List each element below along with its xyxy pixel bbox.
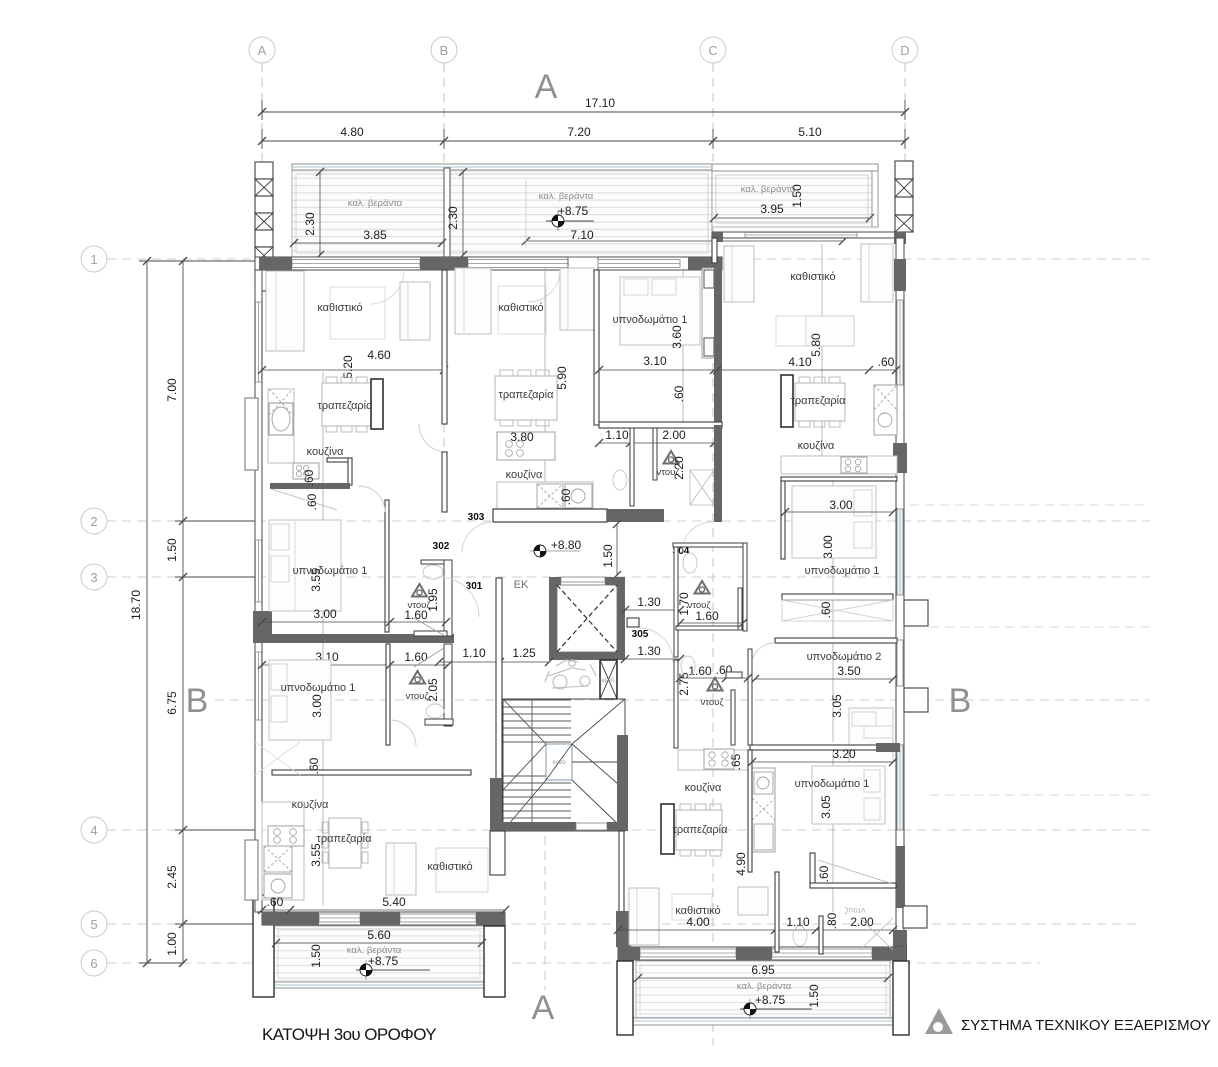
svg-text:5.20: 5.20 <box>341 355 355 379</box>
svg-text:2.20: 2.20 <box>672 456 686 480</box>
svg-text:ΣΥΣΤΗΜΑ ΤΕΧΝΙΚΟΥ ΕΞΑΕΡΙΣΜΟΥ: ΣΥΣΤΗΜΑ ΤΕΧΝΙΚΟΥ ΕΞΑΕΡΙΣΜΟΥ <box>961 1017 1211 1034</box>
svg-text:.60: .60 <box>267 895 284 909</box>
svg-text:EK: EK <box>514 579 529 591</box>
svg-text:2.05: 2.05 <box>426 678 440 702</box>
svg-text:καθιστικό: καθιστικό <box>427 861 472 873</box>
svg-text:1.50: 1.50 <box>601 544 615 568</box>
svg-text:κουζίνα: κουζίνα <box>506 469 543 481</box>
svg-text:2.45: 2.45 <box>165 865 179 889</box>
svg-text:B: B <box>440 43 449 58</box>
svg-text:5.10: 5.10 <box>798 125 822 139</box>
svg-text:7.20: 7.20 <box>567 125 591 139</box>
svg-text:5.60: 5.60 <box>367 928 391 942</box>
svg-text:1.50: 1.50 <box>165 538 179 562</box>
svg-text:4: 4 <box>90 823 97 838</box>
svg-text:6.75: 6.75 <box>165 691 179 715</box>
svg-text:3.55: 3.55 <box>309 568 323 592</box>
svg-text:1.60: 1.60 <box>688 664 712 678</box>
svg-text:B: B <box>949 682 972 720</box>
svg-text:υπνοδωμάτιο 1: υπνοδωμάτιο 1 <box>293 565 368 577</box>
svg-text:1.50: 1.50 <box>790 184 804 208</box>
svg-text:1.60: 1.60 <box>404 608 428 622</box>
svg-text:305: 305 <box>632 629 649 640</box>
svg-text:D: D <box>900 43 909 58</box>
svg-text:υπνοδωμάτιο 2: υπνοδωμάτιο 2 <box>807 651 882 663</box>
svg-text:1.60: 1.60 <box>404 650 428 664</box>
svg-text:1.50: 1.50 <box>807 984 821 1008</box>
svg-text:κουζίνα: κουζίνα <box>307 446 344 458</box>
svg-text:1.10: 1.10 <box>605 428 629 442</box>
svg-text:3.80: 3.80 <box>510 430 534 444</box>
svg-text:.80: .80 <box>825 912 839 929</box>
svg-text:6: 6 <box>90 956 97 971</box>
svg-text:καλ. βεράντα: καλ. βεράντα <box>539 191 594 202</box>
svg-text:302: 302 <box>433 541 450 552</box>
svg-text:καλ. βεράντα: καλ. βεράντα <box>737 981 792 992</box>
svg-text:+8.75: +8.75 <box>558 204 589 218</box>
svg-text:+8.80: +8.80 <box>551 538 582 552</box>
svg-text:3.10: 3.10 <box>643 354 667 368</box>
svg-text:1.30: 1.30 <box>637 644 661 658</box>
svg-text:2.30: 2.30 <box>446 206 460 230</box>
svg-text:C: C <box>708 43 717 58</box>
svg-text:1.10: 1.10 <box>462 646 486 660</box>
svg-text:4.00: 4.00 <box>686 915 710 929</box>
svg-text:5.80: 5.80 <box>809 333 823 357</box>
svg-text:3.60: 3.60 <box>670 325 684 349</box>
svg-text:1.30: 1.30 <box>637 595 661 609</box>
svg-text:3.00: 3.00 <box>310 694 324 718</box>
svg-text:A: A <box>258 43 267 58</box>
svg-text:καλ. βεράντα: καλ. βεράντα <box>741 184 796 195</box>
svg-text:τραπεζαρία: τραπεζαρία <box>499 389 555 401</box>
svg-text:2: 2 <box>90 514 97 529</box>
svg-text:1.00: 1.00 <box>165 932 179 956</box>
svg-text:17.10: 17.10 <box>585 96 615 110</box>
svg-text:303: 303 <box>468 512 485 523</box>
svg-text:4.60: 4.60 <box>367 348 391 362</box>
svg-text:υπνοδωμάτιο 1: υπνοδωμάτιο 1 <box>805 565 880 577</box>
svg-text:υπνοδωμάτιο 1: υπνοδωμάτιο 1 <box>281 682 356 694</box>
svg-text:.65: .65 <box>729 753 743 770</box>
svg-text:6.95: 6.95 <box>751 963 775 977</box>
svg-text:3.00: 3.00 <box>821 535 835 559</box>
svg-text:κενό: κενό <box>601 676 614 684</box>
svg-text:2.00: 2.00 <box>850 915 874 929</box>
svg-text:1.95: 1.95 <box>426 588 440 612</box>
svg-text:1.70: 1.70 <box>677 592 691 616</box>
svg-text:7.10: 7.10 <box>570 228 594 242</box>
svg-text:.60: .60 <box>878 355 895 369</box>
svg-text:1.10: 1.10 <box>786 915 810 929</box>
svg-text:.60: .60 <box>817 865 831 882</box>
svg-text:3.05: 3.05 <box>830 694 844 718</box>
svg-text:καθιστικό: καθιστικό <box>498 302 543 314</box>
svg-text:3.00: 3.00 <box>313 607 337 621</box>
svg-text:3.50: 3.50 <box>837 664 861 678</box>
svg-text:τραπεζαρία: τραπεζαρία <box>318 400 374 412</box>
svg-text:A: A <box>535 68 558 106</box>
svg-text:καθιστικό: καθιστικό <box>317 302 362 314</box>
svg-text:κουζίνα: κουζίνα <box>292 799 329 811</box>
svg-text:3.95: 3.95 <box>760 202 784 216</box>
svg-text:καλ. βεράντα: καλ. βεράντα <box>348 198 403 209</box>
svg-text:κουζίνα: κουζίνα <box>798 440 835 452</box>
svg-text:18.70: 18.70 <box>129 590 143 620</box>
svg-text:υπνοδωμάτιο 1: υπνοδωμάτιο 1 <box>613 314 688 326</box>
svg-text:1.25: 1.25 <box>512 646 536 660</box>
svg-text:1.50: 1.50 <box>309 944 323 968</box>
svg-text:3.55: 3.55 <box>309 843 323 867</box>
svg-text:3.00: 3.00 <box>829 498 853 512</box>
svg-text:4.80: 4.80 <box>340 125 364 139</box>
svg-text:κουζίνα: κουζίνα <box>685 782 722 794</box>
svg-text:5: 5 <box>90 917 97 932</box>
svg-text:ντουζ: ντουζ <box>700 697 724 708</box>
svg-text:5.40: 5.40 <box>382 895 406 909</box>
svg-text:.60: .60 <box>305 493 319 510</box>
svg-text:5.90: 5.90 <box>555 366 569 390</box>
svg-text:3.05: 3.05 <box>819 795 833 819</box>
svg-text:τραπεζαρία: τραπεζαρία <box>673 824 729 836</box>
svg-text:ΚΑΤΟΨΗ 3ου ΟΡΟΦΟΥ: ΚΑΤΟΨΗ 3ου ΟΡΟΦΟΥ <box>262 1025 436 1044</box>
svg-text:2.30: 2.30 <box>303 212 317 236</box>
svg-text:.60: .60 <box>302 469 316 486</box>
svg-text:+8.75: +8.75 <box>755 993 786 1007</box>
svg-text:.60: .60 <box>307 757 321 774</box>
svg-text:+8.75: +8.75 <box>368 954 399 968</box>
svg-text:τραπεζαρία: τραπεζαρία <box>791 395 847 407</box>
svg-text:301: 301 <box>466 581 483 592</box>
svg-text:υπνοδωμάτιο 1: υπνοδωμάτιο 1 <box>795 778 870 790</box>
svg-text:3.85: 3.85 <box>363 228 387 242</box>
svg-text:ντουζ: ντουζ <box>844 906 865 916</box>
svg-text:.60: .60 <box>819 601 833 618</box>
svg-text:τραπεζαρία: τραπεζαρία <box>317 833 373 845</box>
svg-text:4.90: 4.90 <box>734 852 748 876</box>
svg-text:3.20: 3.20 <box>832 747 856 761</box>
svg-text:.60: .60 <box>559 488 573 505</box>
svg-text:7.00: 7.00 <box>165 378 179 402</box>
svg-text:1: 1 <box>90 252 97 267</box>
svg-text:1.60: 1.60 <box>695 609 719 623</box>
svg-text:.60: .60 <box>672 385 686 402</box>
svg-text:A: A <box>532 989 555 1027</box>
svg-text:B: B <box>186 682 209 720</box>
svg-text:2.00: 2.00 <box>662 428 686 442</box>
svg-text:4.10: 4.10 <box>788 355 812 369</box>
svg-text:3: 3 <box>90 570 97 585</box>
svg-text:καθιστικό: καθιστικό <box>790 271 835 283</box>
